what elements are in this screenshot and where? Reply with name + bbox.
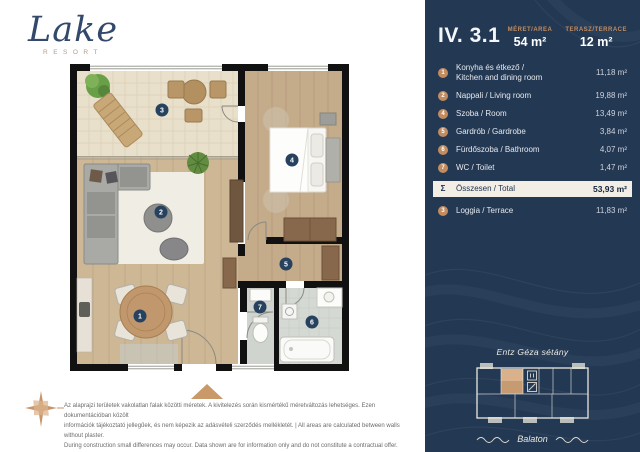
floor-plan-svg: 1 2 3 4 5 6 7 [70, 60, 358, 376]
bathroom-window [232, 364, 274, 371]
terrace-chair-right [210, 81, 226, 98]
sideboard [223, 258, 236, 288]
terrace-stool [185, 109, 202, 122]
wave-icon [555, 435, 589, 443]
core-icons [527, 371, 536, 392]
entry-mat [120, 344, 178, 364]
brand-logo: Lake RESORT [28, 12, 124, 56]
dining-table [120, 286, 172, 338]
terrace-window [90, 64, 222, 71]
toilet [253, 324, 268, 343]
terrace-chair-left [168, 81, 184, 98]
room-number-badge: 1 [438, 68, 448, 78]
total-label: Összesen / Total [456, 184, 515, 194]
disclaimer-text: Az alaprajzi területek vakolatlan falak … [64, 402, 414, 451]
disclaimer-line-3: During construction small differences ma… [64, 442, 414, 452]
brand-name: Lake [28, 12, 124, 48]
room-number-badge: 5 [438, 127, 448, 137]
lake-label-row: Balaton [425, 434, 640, 444]
room-row-loggia: 3 Loggia / Terrace 11,83 m² [438, 206, 627, 216]
marker-7: 7 [254, 301, 267, 314]
washing-machine [282, 304, 297, 319]
bedroom-bench [326, 138, 340, 182]
elevator-icon [527, 371, 536, 380]
wave-icon [476, 435, 510, 443]
info-panel: IV. 3.1 MÉRET/AREA 54 m² TERASZ/TERRACE … [425, 0, 640, 452]
disclaimer-line-2: információk tájékoztató jellegűek, és ne… [64, 422, 414, 442]
site-map: Entz Géza sétány [425, 347, 640, 444]
unit-number: IV. 3.1 [438, 24, 500, 48]
room-name: Szoba / Room [456, 109, 507, 119]
living-plant [187, 152, 209, 174]
room-name: Nappali / Living room [456, 91, 531, 101]
kitchen-counter [77, 278, 92, 352]
brand-subtitle: RESORT [28, 49, 124, 56]
marker-1: 1 [134, 310, 147, 323]
room-row-living: 2 Nappali / Living room 19,88 m² [438, 91, 627, 101]
room-area: 4,07 m² [600, 145, 627, 154]
room-area: 19,88 m² [595, 91, 627, 100]
wc-sink [250, 289, 271, 301]
tv-cabinet [230, 180, 243, 242]
room-area: 1,47 m² [600, 163, 627, 172]
sigma-icon: Σ [438, 184, 448, 193]
stat-area: MÉRET/AREA 54 m² [508, 27, 553, 49]
room-row-wardrobe: 5 Gardrób / Gardrobe 3,84 m² [438, 127, 627, 137]
room-area: 13,49 m² [595, 109, 627, 118]
marker-5: 5 [280, 258, 293, 271]
unit-dividers [477, 368, 588, 418]
marker-3: 3 [156, 104, 169, 117]
marker-6: 6 [306, 316, 319, 329]
compass-rose-icon [22, 390, 68, 433]
lake-label: Balaton [517, 434, 548, 444]
room-name: Gardrób / Gardrobe [456, 127, 526, 137]
terrace-label: TERASZ/TERRACE [565, 27, 627, 33]
dining-window [128, 364, 174, 371]
floor-plan: 1 2 3 4 5 6 7 [70, 60, 358, 376]
entrance-triangle-icon [191, 384, 223, 399]
total-row: Σ Összesen / Total 53,93 m² [433, 181, 632, 197]
room-row-kitchen: 1 Konyha és étkező / Kitchen and dining … [438, 63, 627, 83]
room-name: Fürdőszoba / Bathroom [456, 145, 540, 155]
room-list: 1 Konyha és étkező / Kitchen and dining … [438, 63, 627, 224]
balcony-tabs [480, 363, 585, 423]
disclaimer-line-1: Az alaprajzi területek vakolatlan falak … [64, 402, 414, 422]
street-label: Entz Géza sétány [425, 347, 640, 357]
room-row-bedroom: 4 Szoba / Room 13,49 m² [438, 109, 627, 119]
room-number-badge: 7 [438, 163, 448, 173]
svg-text:1: 1 [138, 314, 142, 321]
room-number-badge: 4 [438, 109, 448, 119]
room-name: Loggia / Terrace [456, 206, 513, 216]
marker-2: 2 [155, 206, 168, 219]
unit-stats: MÉRET/AREA 54 m² TERASZ/TERRACE 12 m² [508, 27, 627, 49]
total-area: 53,93 m² [593, 184, 627, 194]
marker-4: 4 [286, 154, 299, 167]
terrace-value: 12 m² [565, 35, 627, 49]
room-area: 3,84 m² [600, 127, 627, 136]
room-area: 11,18 m² [596, 68, 627, 77]
building-site-plan [475, 362, 591, 424]
svg-text:5: 5 [284, 262, 288, 269]
svg-text:4: 4 [290, 158, 294, 165]
svg-text:6: 6 [310, 320, 314, 327]
bedside-table [320, 113, 336, 125]
room-row-wc: 7 WC / Toilet 1,47 m² [438, 163, 627, 173]
svg-text:2: 2 [159, 210, 163, 217]
room-number-badge: 2 [438, 91, 448, 101]
svg-text:3: 3 [160, 108, 164, 115]
room-area: 11,83 m² [596, 206, 627, 215]
terrace-table [182, 80, 206, 104]
svg-text:7: 7 [258, 305, 262, 312]
room-number-badge: 6 [438, 145, 448, 155]
bedroom-window [268, 64, 328, 71]
stat-terrace: TERASZ/TERRACE 12 m² [565, 27, 627, 49]
room-number-badge: 3 [438, 206, 448, 216]
room-name: Konyha és étkező / Kitchen and dining ro… [456, 63, 542, 83]
area-value: 54 m² [508, 35, 553, 49]
room-name: WC / Toilet [456, 163, 495, 173]
room-row-bathroom: 6 Fürdőszoba / Bathroom 4,07 m² [438, 145, 627, 155]
area-label: MÉRET/AREA [508, 27, 553, 33]
highlighted-unit [501, 369, 523, 394]
kitchen-sink [79, 302, 90, 317]
armchair [160, 238, 188, 260]
